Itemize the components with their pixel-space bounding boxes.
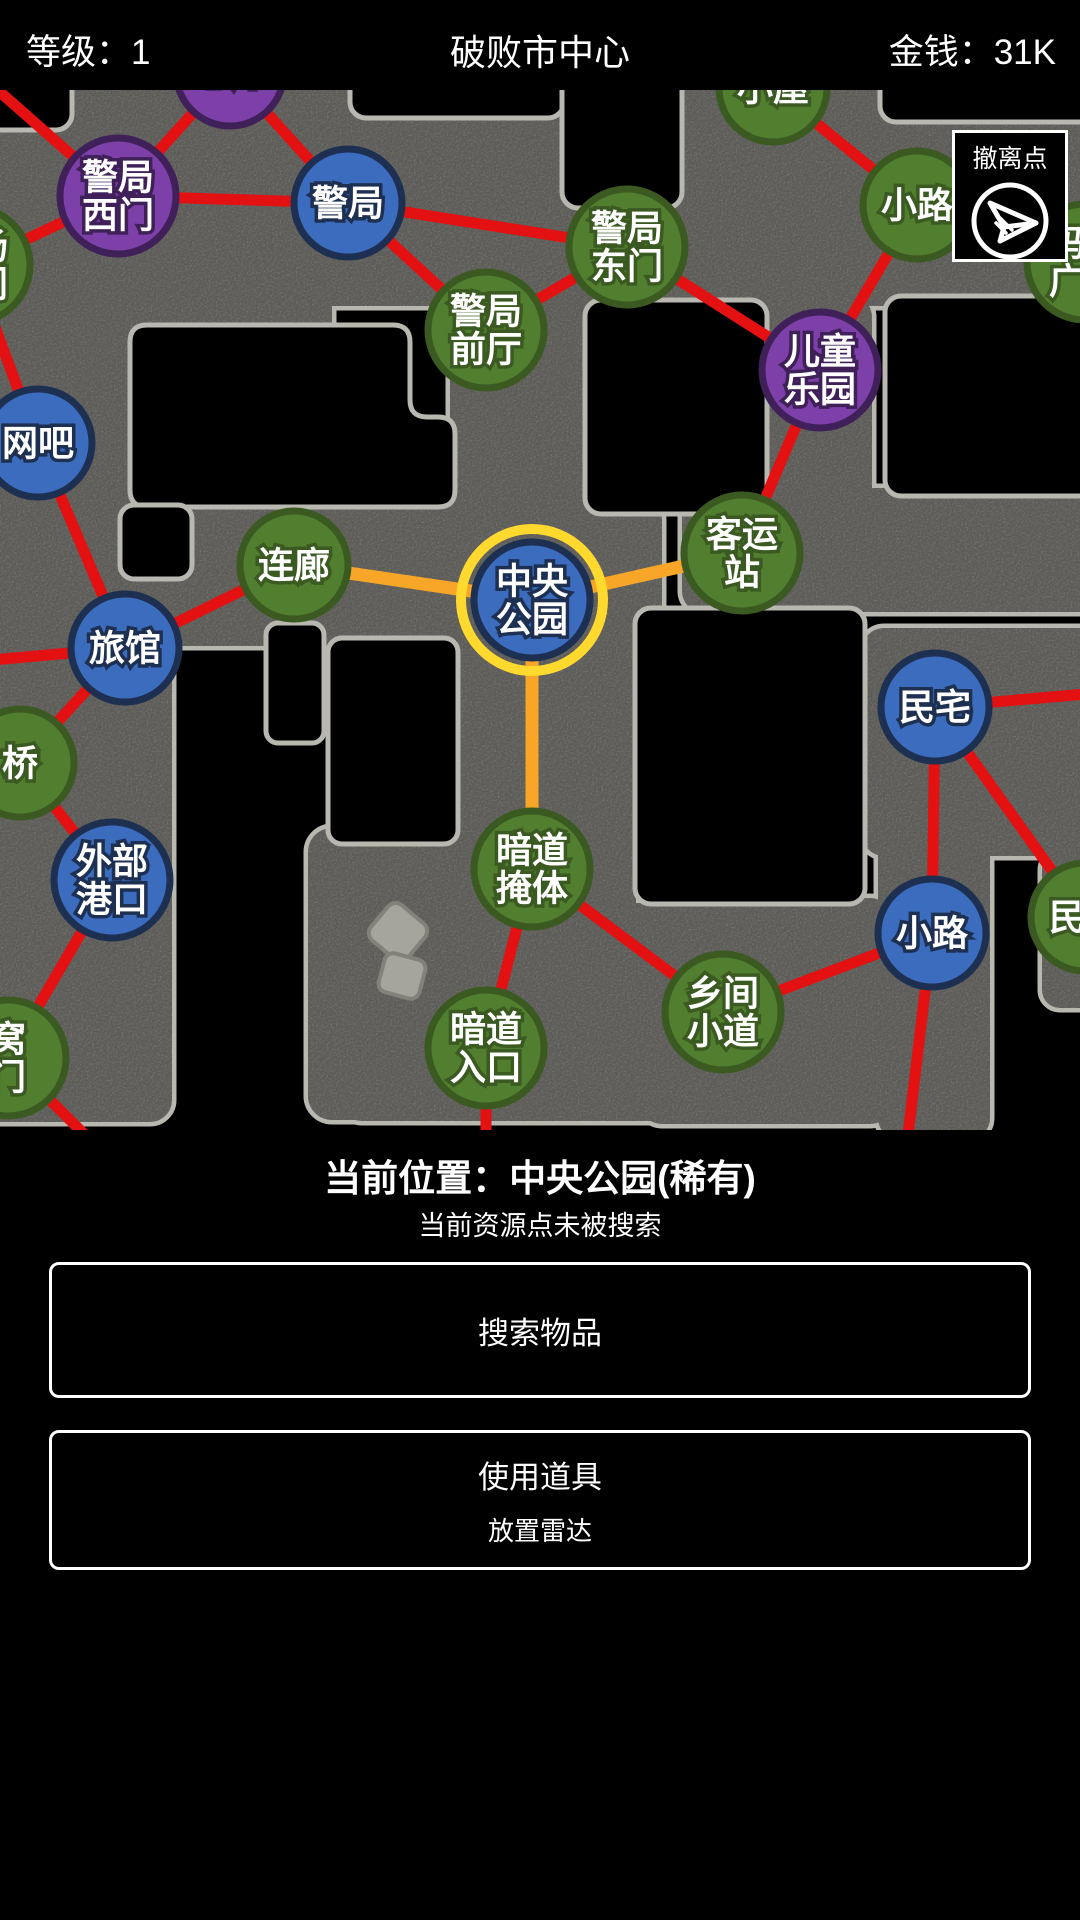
map-node-andao-yanti[interactable]: 暗道掩体 xyxy=(474,811,590,927)
node-label: 桥 xyxy=(2,743,38,784)
node-label: 窝 xyxy=(0,1019,26,1060)
node-label: 小路 xyxy=(881,185,954,226)
map-node-xiaolu-right[interactable]: 小路 xyxy=(878,879,986,987)
map-node-minzhai[interactable]: 民宅 xyxy=(881,653,989,761)
place-radar-label: 放置雷达 xyxy=(488,1511,592,1548)
node-label: 外部 xyxy=(76,841,148,882)
search-status-text: 当前资源点未被搜索 xyxy=(0,1204,1080,1243)
node-label: 儿童 xyxy=(784,331,856,372)
node-label: 暗道 xyxy=(496,830,568,871)
evacuation-point-button[interactable]: 撤离点 xyxy=(952,130,1068,262)
game-screen: 等级：1 破败市中心 金钱：31K xyxy=(0,0,1080,1920)
current-location-text: 当前位置：中央公园(稀有) xyxy=(0,1148,1080,1202)
node-label: 乡间 xyxy=(687,973,759,1014)
node-label: 入口 xyxy=(450,1047,522,1088)
node-label: 广场 xyxy=(1049,261,1080,302)
node-label: 小道 xyxy=(687,1011,759,1052)
node-label: 东门 xyxy=(591,246,663,287)
node-label: 警局 xyxy=(591,208,663,249)
bottom-panel: 当前位置：中央公园(稀有) 当前资源点未被搜索 搜索物品 使用道具 放置雷达 xyxy=(0,1130,1080,1920)
map-node-jingju-dongmen[interactable]: 警局东门 xyxy=(569,189,685,305)
map-node-andao-rukou[interactable]: 暗道入口 xyxy=(428,990,544,1106)
node-label: 暗道 xyxy=(450,1009,522,1050)
map-area: 仓库警局西门警局小屋警局东门警局前厅小路码头广场儿童乐园广场大门网吧连廊中央公园… xyxy=(0,90,1080,1130)
node-label: 前厅 xyxy=(450,329,522,370)
node-label: 警局 xyxy=(82,157,154,198)
map-node-xiangjian-xiaodao[interactable]: 乡间小道 xyxy=(665,954,781,1070)
map-node-jingju-ximen[interactable]: 警局西门 xyxy=(60,138,176,254)
node-label: 连廊 xyxy=(258,545,330,586)
map-node-wangba[interactable]: 网吧 xyxy=(0,389,92,497)
navigation-arrow-icon xyxy=(966,179,1054,263)
search-items-button[interactable]: 搜索物品 xyxy=(49,1262,1031,1398)
node-label: 警局 xyxy=(450,291,522,332)
evacuation-point-label: 撤离点 xyxy=(955,139,1065,175)
node-label: 民宅 xyxy=(899,687,971,728)
node-label: 大门 xyxy=(0,264,8,305)
map-node-waibu-gangkou[interactable]: 外部港口 xyxy=(54,822,170,938)
node-label: 掩体 xyxy=(496,868,568,909)
node-label: 门 xyxy=(0,1057,26,1098)
node-label: 中央 xyxy=(496,561,569,602)
node-label: 小路 xyxy=(896,913,969,954)
node-label: 西门 xyxy=(82,195,154,236)
node-label: 港口 xyxy=(76,879,148,920)
node-label: 旅馆 xyxy=(89,628,161,669)
map-node-qiao[interactable]: 桥 xyxy=(0,709,74,817)
map-node-lianlang[interactable]: 连廊 xyxy=(240,511,348,619)
top-bar: 等级：1 破败市中心 金钱：31K xyxy=(0,0,1080,92)
search-items-label: 搜索物品 xyxy=(478,1308,602,1353)
node-label: 乐园 xyxy=(784,369,856,410)
map-node-jingju[interactable]: 警局 xyxy=(294,149,402,257)
use-item-label: 使用道具 xyxy=(478,1452,602,1497)
map-node-keyunzhan[interactable]: 客运站 xyxy=(684,495,800,611)
money-label: 金钱：31K xyxy=(889,24,1056,75)
node-label: 小屋 xyxy=(737,90,809,109)
node-label: 站 xyxy=(724,552,760,593)
node-label: 网吧 xyxy=(2,423,74,464)
map-node-jingju-qianting[interactable]: 警局前厅 xyxy=(428,272,544,388)
map-node-ertong-leyuan[interactable]: 儿童乐园 xyxy=(762,312,878,428)
map-node-lvguan[interactable]: 旅馆 xyxy=(71,594,179,702)
node-label: 民宅 xyxy=(1049,897,1080,938)
node-label: 公园 xyxy=(496,599,568,640)
map-node-zhongyang-gongyuan[interactable]: 中央公园 xyxy=(461,529,603,671)
node-label: 广场 xyxy=(0,226,8,267)
node-label: 客运 xyxy=(706,514,778,555)
use-item-button[interactable]: 使用道具 放置雷达 xyxy=(49,1430,1031,1570)
node-label: 警局 xyxy=(312,183,384,224)
node-label: 仓库 xyxy=(194,90,266,93)
